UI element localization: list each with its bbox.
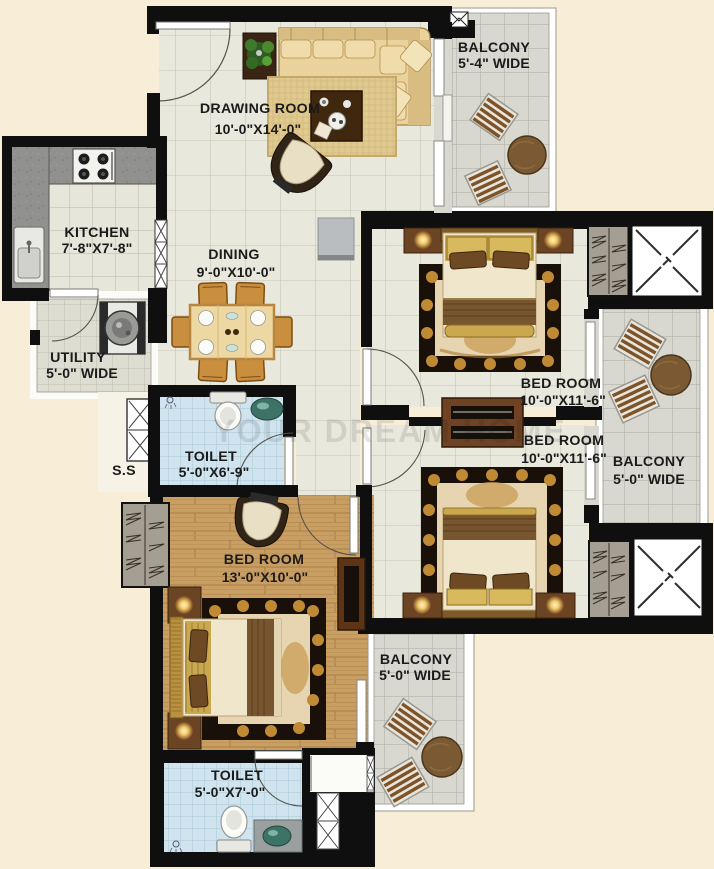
svg-text:10'-0"X14'-0": 10'-0"X14'-0" [215, 121, 302, 137]
svg-text:13'-0"X10'-0": 13'-0"X10'-0" [222, 569, 309, 585]
svg-text:YOUR DREAM HOME: YOUR DREAM HOME [213, 413, 567, 449]
svg-text:5'-0"X6'-9": 5'-0"X6'-9" [179, 464, 250, 480]
svg-text:DRAWING ROOM: DRAWING ROOM [200, 101, 320, 117]
svg-text:BALCONY: BALCONY [458, 40, 530, 56]
svg-text:5'-0" WIDE: 5'-0" WIDE [613, 471, 685, 487]
svg-text:BALCONY: BALCONY [380, 652, 452, 668]
svg-text:S.S: S.S [112, 463, 136, 479]
svg-text:5'-4" WIDE: 5'-4" WIDE [458, 55, 530, 71]
svg-text:KITCHEN: KITCHEN [64, 225, 129, 241]
svg-text:DINING: DINING [208, 247, 259, 263]
svg-text:5'-0"X7'-0": 5'-0"X7'-0" [195, 784, 266, 800]
svg-text:TOILET: TOILET [185, 449, 237, 465]
svg-text:BED ROOM: BED ROOM [524, 433, 604, 449]
svg-text:5'-0" WIDE: 5'-0" WIDE [379, 667, 451, 683]
svg-text:BED ROOM: BED ROOM [224, 552, 304, 568]
svg-text:5'-0" WIDE: 5'-0" WIDE [46, 365, 118, 381]
svg-text:UTILITY: UTILITY [50, 350, 106, 366]
svg-text:BALCONY: BALCONY [613, 454, 685, 470]
svg-text:TOILET: TOILET [211, 768, 263, 784]
svg-text:7'-8"X7'-8": 7'-8"X7'-8" [62, 240, 133, 256]
svg-text:10'-0"X11'-6": 10'-0"X11'-6" [521, 450, 607, 466]
svg-text:9'-0"X10'-0": 9'-0"X10'-0" [197, 264, 276, 280]
svg-text:BED ROOM: BED ROOM [521, 376, 601, 392]
svg-text:10'-0"X11'-6": 10'-0"X11'-6" [520, 392, 606, 408]
